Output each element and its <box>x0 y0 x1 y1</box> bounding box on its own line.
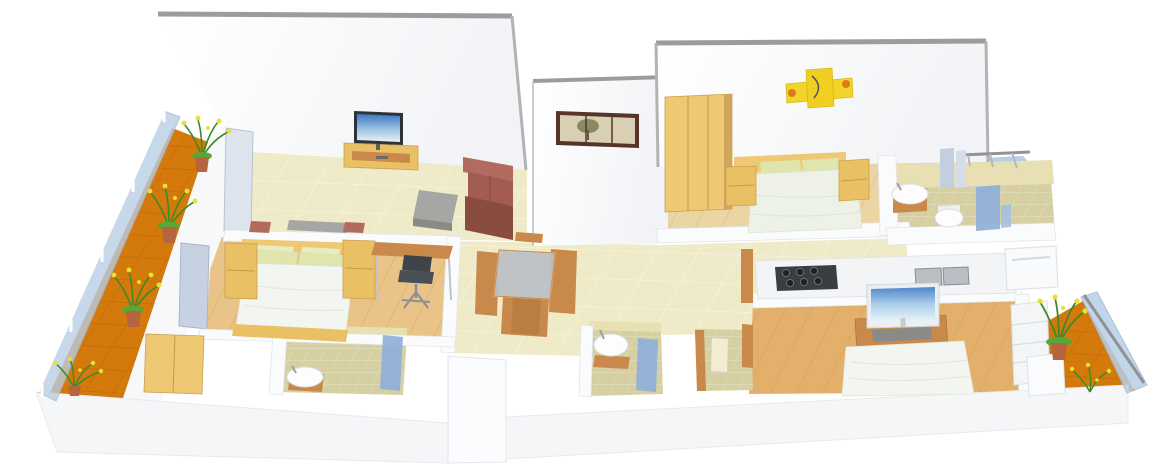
window-panel <box>179 243 209 329</box>
art-accent <box>788 89 796 97</box>
front-wall-right <box>506 385 1128 459</box>
basin-stand <box>593 355 630 369</box>
wall-edge <box>656 43 658 167</box>
front-wall-left <box>36 392 448 463</box>
kitchen-door-frame <box>741 249 753 303</box>
common-bathroom-left-wall <box>579 325 593 397</box>
coffee-table-top <box>413 190 458 223</box>
bed-duvet <box>842 341 974 396</box>
drawer-handle <box>376 156 388 159</box>
dining-table-glass-top <box>494 250 555 299</box>
nightstand <box>343 240 375 299</box>
table-pedestal <box>511 297 541 335</box>
shower-partition <box>1001 204 1011 228</box>
floor-plan-svg <box>0 0 1160 467</box>
wash-basin <box>892 184 928 204</box>
wall-cap <box>656 41 986 43</box>
washing-machine <box>1005 246 1058 290</box>
accent-chair <box>249 221 271 233</box>
shower-partition <box>976 185 1000 231</box>
chair-seat <box>398 270 434 284</box>
wardrobe <box>665 94 732 212</box>
foyer-column-wall <box>533 77 668 246</box>
toilet-door-frame <box>742 324 753 368</box>
framed-picture <box>556 111 639 148</box>
art-accent <box>842 80 850 88</box>
wall-edge <box>986 41 988 162</box>
window-panel <box>940 148 954 188</box>
toilet <box>935 209 963 227</box>
floor-plan-render <box>0 0 1160 467</box>
tv-screen <box>871 287 935 323</box>
sofa <box>463 157 513 240</box>
art-vertical <box>806 68 834 108</box>
accent-chair <box>343 222 365 233</box>
tv-screen <box>357 114 400 142</box>
window-panel <box>956 150 966 188</box>
wall-cap <box>158 14 512 16</box>
steel-sink-bowl <box>943 267 969 285</box>
towel <box>711 338 728 372</box>
entrance-nook <box>448 356 506 463</box>
gas-hob <box>775 265 838 291</box>
wash-basin <box>594 334 628 356</box>
window-panel <box>224 128 253 235</box>
shower-partition <box>380 335 403 391</box>
shower-partition <box>636 338 658 392</box>
chair-back <box>402 255 432 272</box>
wash-basin <box>287 367 323 387</box>
